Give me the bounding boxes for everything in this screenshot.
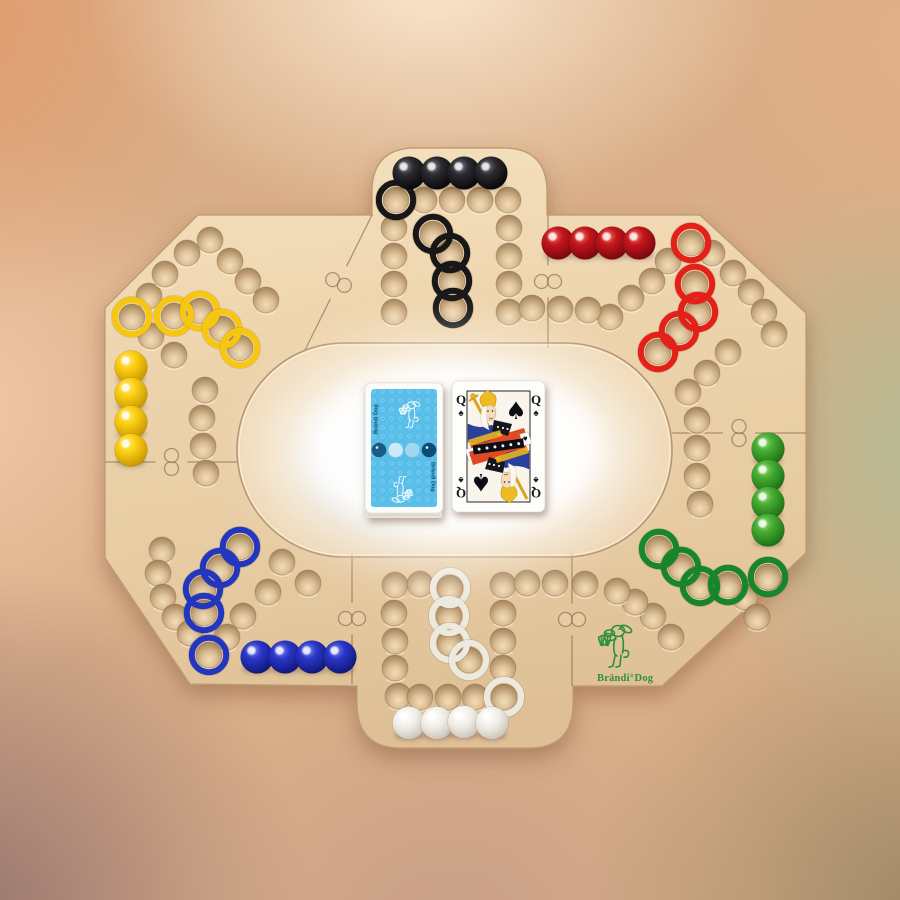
photo-background: Brändi Dog Brändi Dog Q ♠ Q ♠ Q ♠ Q ♠ ♠ <box>0 0 900 900</box>
puzzle-seam <box>352 612 366 626</box>
deck-edge-label: Brändi Dog <box>430 462 436 492</box>
queen-of-spades-card[interactable]: Q ♠ Q ♠ Q ♠ Q ♠ ♠ <box>452 381 545 512</box>
puzzle-seam <box>732 420 746 434</box>
red-marble[interactable] <box>623 227 656 261</box>
puzzle-seam <box>165 449 179 463</box>
blue-marble[interactable] <box>324 641 357 675</box>
svg-text:♠: ♠ <box>505 397 527 425</box>
svg-text:Q: Q <box>531 392 541 407</box>
logo-text: Brändi®Dog <box>597 673 654 685</box>
svg-text:Q: Q <box>456 392 466 407</box>
card-deck[interactable]: Brändi Dog Brändi Dog <box>365 383 443 518</box>
svg-text:♠: ♠ <box>458 408 464 419</box>
svg-text:Q: Q <box>456 486 466 501</box>
puzzle-seam <box>559 613 573 627</box>
puzzle-seam <box>339 612 353 626</box>
white-marble[interactable] <box>476 707 509 741</box>
puzzle-seam <box>337 278 351 292</box>
yellow-marble[interactable] <box>115 434 148 468</box>
svg-text:♠: ♠ <box>458 474 464 485</box>
puzzle-seam <box>732 433 746 447</box>
svg-text:♠: ♠ <box>533 474 539 485</box>
green-marble[interactable] <box>752 514 785 548</box>
game-scene: Brändi Dog Brändi Dog Q ♠ Q ♠ Q ♠ Q ♠ ♠ <box>0 0 900 900</box>
puzzle-seam <box>548 275 562 289</box>
svg-text:Q: Q <box>531 486 541 501</box>
puzzle-seam <box>572 613 586 627</box>
puzzle-seam <box>165 462 179 476</box>
svg-text:♠: ♠ <box>533 408 539 419</box>
black-marble[interactable] <box>475 157 508 191</box>
deck-edge-label: Brändi Dog <box>374 404 380 434</box>
puzzle-seam <box>535 275 549 289</box>
